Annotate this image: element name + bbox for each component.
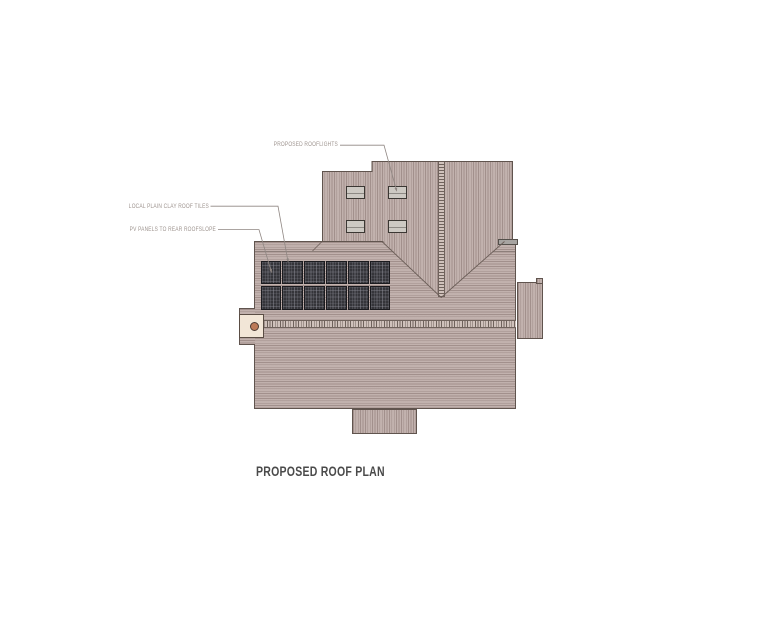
chimney-pot [250, 322, 259, 331]
tile-course-line [255, 381, 515, 382]
pv-panel [370, 261, 390, 285]
pv-panel [282, 261, 302, 285]
pv-panel [304, 286, 324, 310]
pv-panel [370, 286, 390, 310]
rooflight [388, 186, 407, 199]
rooflight-glazing-bar [347, 227, 364, 228]
right-bay-roof [517, 282, 543, 339]
pv-panel [261, 261, 281, 285]
pv-panel [348, 286, 368, 310]
pv-panel [326, 286, 346, 310]
annotation-label-pv-panels: PV PANELS TO REAR ROOFSLOPE [104, 226, 217, 233]
pv-panel [282, 286, 302, 310]
gable-ridge-ladder [438, 161, 445, 297]
rooflight [346, 186, 365, 199]
flat-roof-link [498, 239, 518, 245]
rooflight-glazing-bar [389, 193, 406, 194]
pv-panel [348, 261, 368, 285]
annotation-label-clay-tiles: LOCAL PLAIN CLAY ROOF TILES [97, 203, 210, 210]
pv-panel-array [261, 261, 391, 310]
rooflight-glazing-bar [389, 227, 406, 228]
bottom-bay-roof [352, 409, 417, 434]
right-bay-step [536, 278, 543, 284]
rooflight [346, 220, 365, 233]
main-ridge-band [254, 320, 516, 328]
drawing-title: PROPOSED ROOF PLAN [256, 465, 385, 479]
pv-panel [304, 261, 324, 285]
annotation-label-rooflights: PROPOSED ROOFLIGHTS [226, 141, 339, 148]
rooflight [388, 220, 407, 233]
rooflight-glazing-bar [347, 193, 364, 194]
pv-panel [326, 261, 346, 285]
pv-panel [261, 286, 281, 310]
roof-plan-sheet: PROPOSED ROOFLIGHTS LOCAL PLAIN CLAY ROO… [0, 0, 757, 644]
